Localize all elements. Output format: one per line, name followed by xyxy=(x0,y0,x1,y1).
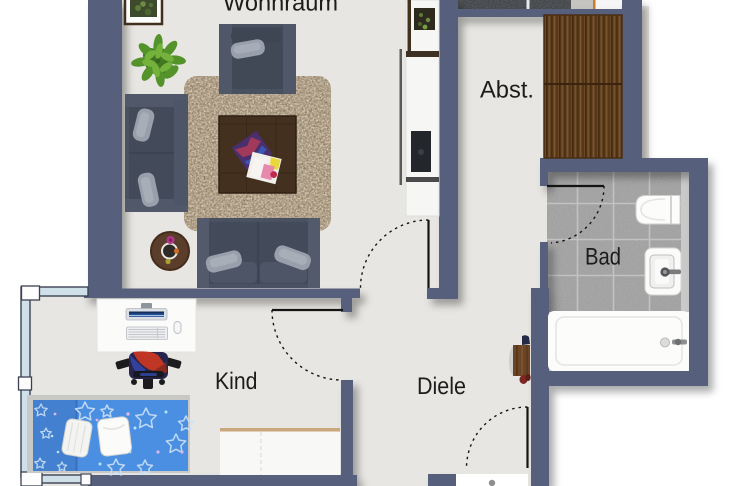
svg-text:Diele: Diele xyxy=(417,373,466,400)
svg-text:Kind: Kind xyxy=(215,368,258,395)
svg-text:Abst.: Abst. xyxy=(480,77,534,104)
svg-text:Wohnraum: Wohnraum xyxy=(223,0,338,17)
svg-text:Bad: Bad xyxy=(585,244,621,271)
